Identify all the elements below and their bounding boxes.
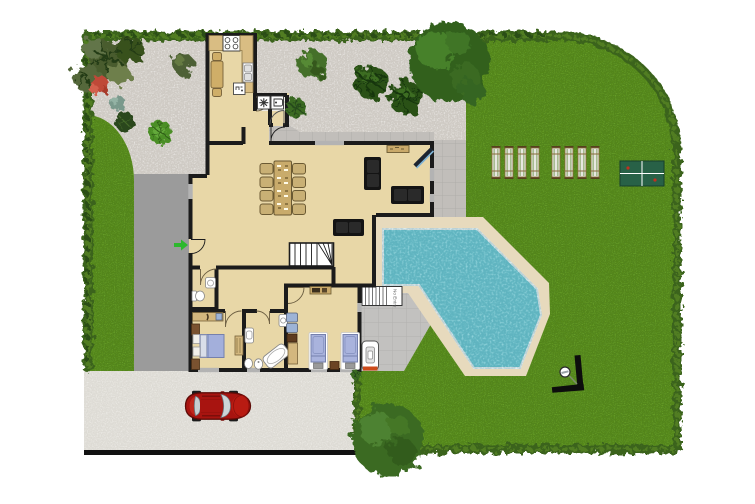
svg-text:No Entry: No Entry [393, 289, 398, 308]
